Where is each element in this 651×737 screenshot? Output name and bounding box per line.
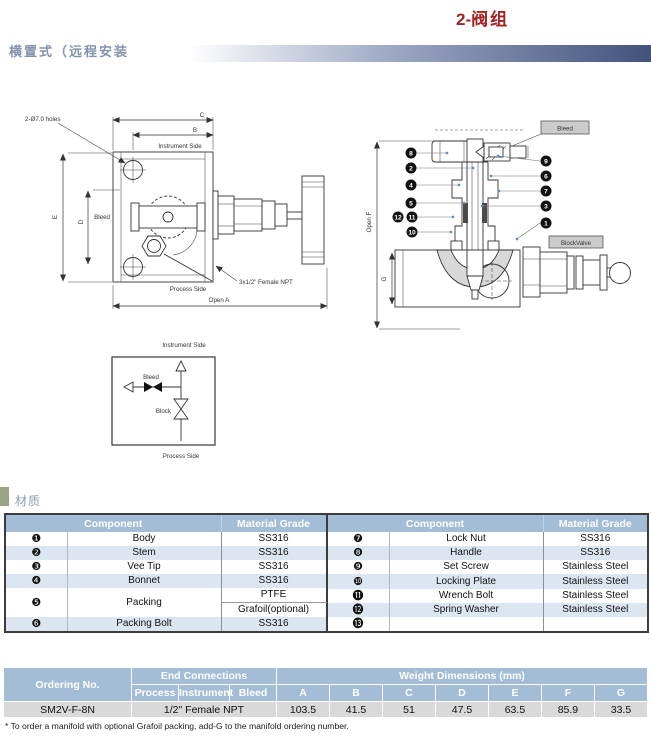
component-name: Vee Tip [67, 560, 221, 574]
header-material-grade: Material Grade [543, 514, 648, 532]
bleed-tag: Bleed [512, 121, 589, 146]
table-row: ⓫ Wrench Bolt Stainless Steel [327, 589, 648, 603]
header-dim-b: B [330, 685, 382, 701]
ordering-no-value: SM2V-F-8N [4, 702, 131, 717]
npt-callout: 3x1/2" Female NPT [216, 266, 293, 286]
dim-d-label: D [78, 219, 85, 224]
dim-b-value: 41.5 [330, 702, 382, 717]
table-row: ❻ Packing Bolt SS316 [5, 617, 326, 632]
datasheet-page: 2-阀组 横置式（远程安装 [0, 0, 651, 737]
page-title: 2-阀组 [456, 5, 509, 30]
svg-text:6: 6 [544, 173, 548, 180]
dim-g-value: 33.5 [595, 702, 647, 717]
bleed-valve-symbol: Bleed [124, 374, 181, 392]
callout-5: 5 [406, 198, 417, 209]
table-row: ⓬ Spring Washer Stainless Steel [327, 603, 648, 617]
component-name: Wrench Bolt [389, 589, 543, 603]
header-end-connections: End Connections [132, 668, 276, 684]
dim-c-value: 51 [383, 702, 435, 717]
item-number: ⓬ [327, 603, 389, 617]
svg-text:9: 9 [544, 158, 548, 165]
dim-e-value: 63.5 [489, 702, 541, 717]
item-number: ❾ [327, 560, 389, 574]
holes-callout: 2-Ø7.0 holes [25, 116, 125, 163]
table-header-row: Ordering No. End Connections Weight Dime… [4, 668, 647, 684]
material-grade: SS316 [543, 546, 648, 560]
instrument-side-label: Instrument Side [158, 143, 202, 150]
front-view-drawing: C B Instrument Side E D Bleed 2-Ø7.0 hol… [10, 105, 365, 320]
header-weight-dimensions: Weight Dimensions (mm) [277, 668, 647, 684]
header-ordering-no: Ordering No. [4, 668, 131, 701]
svg-text:8: 8 [409, 150, 413, 157]
item-number: ⓫ [327, 589, 389, 603]
table-row: ⓭ [327, 617, 648, 632]
dim-g: G [381, 253, 392, 304]
svg-text:1: 1 [544, 220, 548, 227]
header-dim-c: C [383, 685, 435, 701]
callout-9: 9 [541, 156, 552, 167]
callout-10: 10 [407, 227, 418, 238]
callout-1: 1 [541, 218, 552, 229]
table-row: ❽ Handle SS316 [327, 546, 648, 560]
svg-text:12: 12 [394, 214, 402, 221]
table-row: ❾ Set Screw Stainless Steel [327, 560, 648, 574]
item-number: ❿ [327, 574, 389, 588]
svg-text:5: 5 [409, 200, 413, 207]
materials-table-right: Component Material Grade ❼ Lock Nut SS31… [327, 513, 650, 633]
material-grade: SS316 [543, 532, 648, 546]
material-grade: SS316 [221, 617, 326, 632]
materials-table-left: Component Material Grade ❶ Body SS316 ❷ … [4, 513, 327, 633]
table-row: ❹ Bonnet SS316 [5, 574, 326, 588]
component-name: Spring Washer [389, 603, 543, 617]
material-grade: SS316 [221, 546, 326, 560]
header-instrument: Instrument [179, 685, 229, 701]
end-connection-value: 1/2" Female NPT [132, 702, 276, 717]
table-row: ❿ Locking Plate Stainless Steel [327, 574, 648, 588]
schematic-bleed-label: Bleed [143, 374, 159, 381]
page-title-text: 阀组 [471, 10, 509, 29]
dim-f-value: 85.9 [542, 702, 594, 717]
callout-6: 6 [541, 171, 552, 182]
page-title-number: 2- [456, 10, 471, 29]
component-name: Lock Nut [389, 532, 543, 546]
material-grade: SS316 [221, 560, 326, 574]
svg-text:7: 7 [544, 188, 548, 195]
material-grade: SS316 [221, 574, 326, 588]
component-name [389, 617, 543, 632]
svg-text:4: 4 [409, 182, 413, 189]
component-name: Stem [67, 546, 221, 560]
header-bleed: Bleed [230, 685, 276, 701]
svg-text:10: 10 [408, 229, 416, 236]
table-row: ❶ Body SS316 [5, 532, 326, 546]
process-side-label: Process Side [170, 286, 207, 293]
header-dim-g: G [595, 685, 647, 701]
item-number: ❽ [327, 546, 389, 560]
section-view-drawing: Open F [365, 108, 651, 338]
bleed-label-front: Bleed [94, 214, 110, 221]
valve-body-section [395, 250, 520, 307]
svg-text:11: 11 [409, 214, 416, 221]
dim-e-label: E [52, 215, 59, 219]
header-process: Process [132, 685, 178, 701]
schematic-block-label: Block [156, 408, 172, 415]
item-number: ❸ [5, 560, 67, 574]
block-valve-tag: BlockValve [549, 236, 603, 248]
dim-d-value: 47.5 [436, 702, 488, 717]
item-number: ❷ [5, 546, 67, 560]
header-dim-e: E [489, 685, 541, 701]
npt-label: 3x1/2" Female NPT [239, 279, 293, 286]
open-f-label: Open F [366, 211, 373, 232]
flow-schematic: Instrument Side Bleed Block Process Side [100, 338, 280, 473]
component-name: Locking Plate [389, 574, 543, 588]
table-row: ❷ Stem SS316 [5, 546, 326, 560]
table-row: ❺ Packing PTFE [5, 588, 326, 603]
header-component: Component [327, 514, 543, 532]
callout-2: 2 [406, 163, 417, 174]
material-grade: Grafoil(optional) [221, 603, 326, 618]
table-header-row: Component Material Grade [5, 514, 326, 532]
bleed-tag-label: Bleed [557, 126, 573, 133]
material-grade: Stainless Steel [543, 560, 648, 574]
callout-4: 4 [406, 180, 417, 191]
header-dim-d: D [436, 685, 488, 701]
holes-label: 2-Ø7.0 holes [25, 116, 60, 123]
item-number: ❹ [5, 574, 67, 588]
bleed-valve-section [432, 130, 528, 251]
material-grade [543, 617, 648, 632]
item-number: ❺ [5, 588, 67, 617]
material-grade: SS316 [221, 532, 326, 546]
header-material-grade: Material Grade [221, 514, 326, 532]
callout-3: 3 [541, 201, 552, 212]
dim-g-label: G [381, 276, 388, 281]
block-valve-front [213, 176, 324, 264]
callout-8: 8 [406, 148, 417, 159]
component-name: Packing Bolt [67, 617, 221, 632]
material-grade: PTFE [221, 588, 326, 603]
header-component: Component [5, 514, 221, 532]
block-valve-section [523, 247, 631, 297]
ordering-footnote: * To order a manifold with optional Graf… [5, 721, 349, 731]
ordering-table: Ordering No. End Connections Weight Dime… [3, 667, 648, 718]
section-header-title: 横置式（远程安装 [9, 41, 129, 60]
material-grade: Stainless Steel [543, 603, 648, 617]
callout-11: 11 [407, 212, 418, 223]
materials-table: Component Material Grade ❶ Body SS316 ❷ … [4, 513, 648, 633]
material-section-title: 材质 [15, 492, 41, 509]
section-marker [0, 487, 9, 506]
item-number: ⓭ [327, 617, 389, 632]
table-row: ❸ Vee Tip SS316 [5, 560, 326, 574]
schematic-instrument-side-label: Instrument Side [162, 342, 206, 349]
material-grade: Stainless Steel [543, 574, 648, 588]
item-number: ❼ [327, 532, 389, 546]
svg-text:2: 2 [409, 165, 413, 172]
dim-c-label: C [200, 112, 205, 119]
item-number: ❶ [5, 532, 67, 546]
dim-a-value: 103.5 [277, 702, 329, 717]
component-name: Bonnet [67, 574, 221, 588]
schematic-process-side-label: Process Side [163, 453, 200, 460]
block-valve-symbol: Block [156, 399, 188, 419]
component-name: Set Screw [389, 560, 543, 574]
component-name: Handle [389, 546, 543, 560]
table-header-row: Component Material Grade [327, 514, 648, 532]
dim-b-label: B [193, 127, 197, 134]
component-name: Packing [67, 588, 221, 617]
header-dim-a: A [277, 685, 329, 701]
block-valve-tag-label: BlockValve [561, 240, 592, 247]
item-number: ❻ [5, 617, 67, 632]
callout-12: 12 [393, 212, 404, 223]
open-a-label: Open A [209, 297, 231, 304]
callout-7: 7 [541, 186, 552, 197]
svg-text:3: 3 [544, 203, 548, 210]
header-dim-f: F [542, 685, 594, 701]
schematic-frame [112, 357, 215, 445]
table-row: ❼ Lock Nut SS316 [327, 532, 648, 546]
header-gradient-bar [188, 45, 651, 62]
component-name: Body [67, 532, 221, 546]
table-row: SM2V-F-8N 1/2" Female NPT 103.5 41.5 51 … [4, 702, 647, 717]
material-grade: Stainless Steel [543, 589, 648, 603]
